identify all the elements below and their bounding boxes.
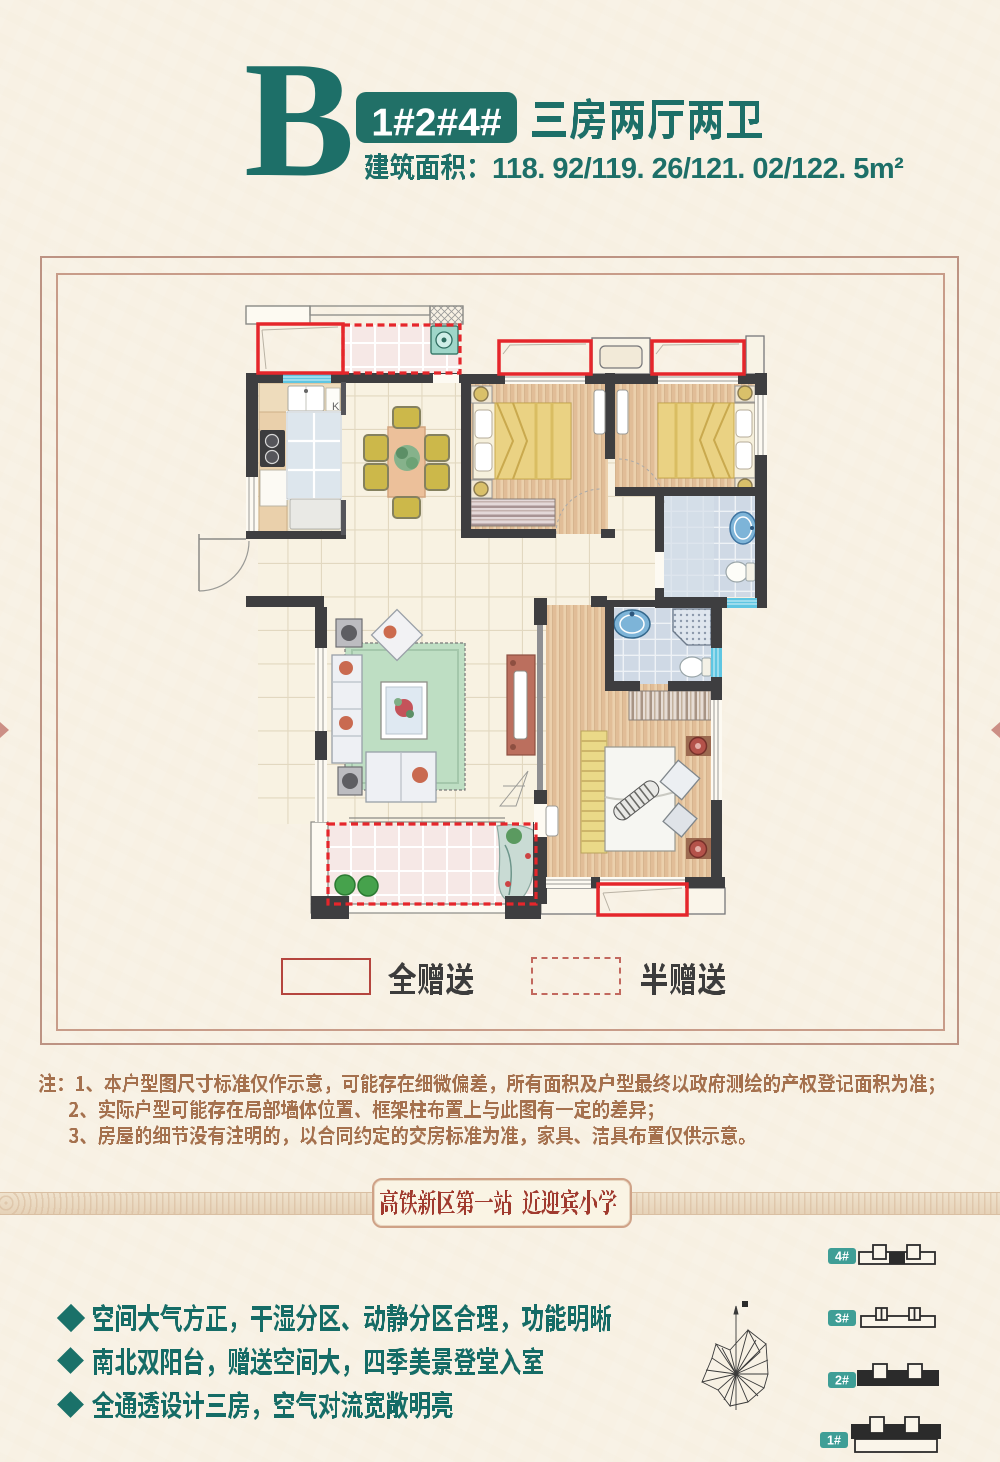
svg-text:118. 92/119. 26/121. 02/122. 5: 118. 92/119. 26/121. 02/122. 5m² [492,153,904,185]
svg-text:1#2#4#: 1#2#4# [371,102,501,145]
